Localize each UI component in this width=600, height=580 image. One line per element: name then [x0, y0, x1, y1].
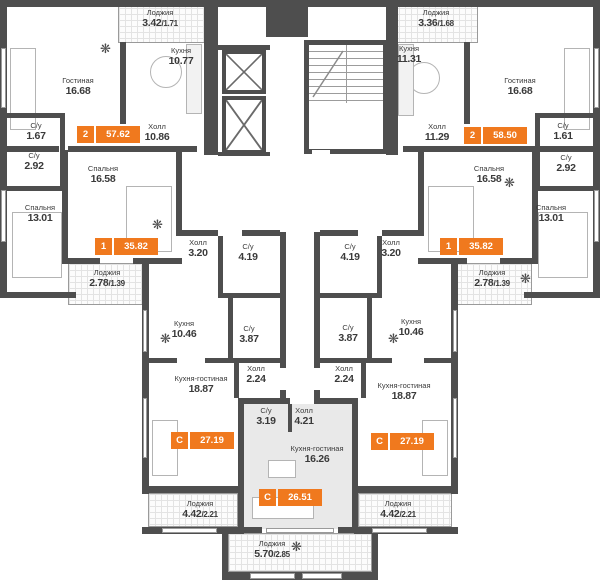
room-label-kitchen-living: Кухня-гостиная16.26	[290, 444, 343, 467]
window	[594, 48, 599, 108]
room-label-bathroom: С/у4.19	[238, 242, 257, 265]
badge-area: 27.19	[390, 433, 434, 450]
wall	[234, 363, 239, 398]
room-label-loggia: Лоджия2.78/1.39	[474, 268, 510, 291]
room-label-kitchen: Кухня10.77	[169, 46, 194, 69]
window	[302, 573, 342, 579]
wall	[541, 146, 593, 152]
room-label-hall: Холл3.20	[381, 238, 400, 261]
room-label-kitchen-living: Кухня-гостиная18.87	[377, 381, 430, 404]
badge-unit-type: 1	[95, 238, 112, 255]
wall	[218, 236, 223, 296]
wall	[228, 296, 233, 358]
wall	[418, 258, 467, 264]
plant-icon: ❋	[520, 272, 531, 285]
wall	[320, 293, 382, 298]
plant-icon: ❋	[160, 332, 171, 345]
wall	[176, 230, 218, 236]
wall	[338, 527, 358, 533]
room-label-kitchen-living: Кухня-гостиная18.87	[174, 374, 227, 397]
wall	[451, 258, 458, 494]
window	[250, 573, 295, 579]
wall	[133, 258, 182, 264]
room-label-bedroom: Спальня16.58	[474, 164, 504, 187]
window	[266, 528, 334, 533]
floor-plan: ❋ ❋ ❋ ❋ ❋ ❋ ❋ Лоджия3.42/1.71 Лоджия3.36…	[0, 0, 600, 580]
plant-icon: ❋	[504, 176, 515, 189]
room-label-loggia: Лоджия3.42/1.71	[142, 8, 178, 31]
elevator-shaft-icon	[222, 50, 266, 94]
wall	[204, 7, 218, 155]
wall	[238, 404, 244, 533]
apartment-badge-studio-center[interactable]: С26.51	[259, 489, 322, 506]
window	[143, 398, 147, 458]
room-label-hall: Холл10.86	[145, 122, 170, 145]
badge-area: 58.50	[483, 127, 527, 144]
badge-unit-type: С	[371, 433, 388, 450]
badge-area: 35.82	[459, 238, 503, 255]
wall	[418, 150, 424, 236]
plant-icon: ❋	[291, 540, 302, 553]
plant-icon: ❋	[388, 332, 399, 345]
room-label-loggia: Лоджия4.42/2.21	[380, 499, 416, 522]
badge-unit-type: С	[259, 489, 276, 506]
room-label-hall: Холл4.21	[294, 406, 313, 429]
wall	[62, 150, 68, 264]
wall	[0, 0, 600, 7]
elevator-shaft-icon	[222, 96, 266, 154]
wall	[382, 230, 424, 236]
badge-area: 26.51	[278, 489, 322, 506]
door-opening	[314, 368, 320, 390]
wall	[358, 486, 458, 493]
room-label-bathroom: С/у3.19	[256, 406, 275, 429]
wall	[205, 358, 283, 363]
wall	[222, 533, 228, 574]
apartment-badge-studio-left[interactable]: С27.19	[171, 432, 234, 449]
wall	[7, 113, 62, 118]
room-label-hall: Холл3.20	[188, 238, 207, 261]
wall	[464, 42, 470, 124]
badge-unit-type: 1	[440, 238, 457, 255]
door-opening	[280, 368, 286, 390]
wall	[142, 486, 242, 493]
room-label-kitchen: Кухня10.46	[172, 319, 197, 342]
wall	[7, 186, 65, 191]
apartment-badge-studio-right[interactable]: С27.19	[371, 433, 434, 450]
window	[453, 398, 457, 458]
badge-area: 35.82	[114, 238, 158, 255]
room-label-bathroom: С/у1.67	[26, 121, 45, 144]
window	[453, 310, 457, 352]
room-label-loggia: Лоджия5.70/2.85	[254, 539, 290, 562]
room-label-bedroom: Спальня13.01	[536, 203, 566, 226]
room-label-bathroom: С/у2.92	[24, 151, 43, 174]
door-opening	[312, 150, 330, 154]
wall	[242, 230, 280, 236]
wall	[500, 258, 538, 264]
room-label-hall: Холл2.24	[334, 364, 353, 387]
wall	[524, 292, 600, 298]
wall	[176, 150, 182, 236]
wall	[288, 404, 292, 432]
apartment-badge-2room-right[interactable]: 258.50	[464, 127, 527, 144]
room-label-kitchen: Кухня11.31	[397, 44, 421, 67]
wall	[222, 572, 378, 580]
badge-unit-type: С	[171, 432, 188, 449]
apartment-badge-1room-right[interactable]: 135.82	[440, 238, 503, 255]
window	[372, 528, 427, 533]
wall	[266, 7, 308, 37]
wall	[238, 398, 290, 404]
badge-unit-type: 2	[464, 127, 481, 144]
badge-unit-type: 2	[77, 126, 94, 143]
wall	[538, 113, 593, 118]
wall	[361, 363, 366, 398]
wall	[142, 258, 149, 494]
window	[594, 190, 599, 242]
room-label-bathroom: С/у2.92	[556, 153, 575, 176]
room-label-bathroom: С/у1.61	[553, 121, 572, 144]
wall	[120, 42, 126, 124]
wall	[238, 527, 262, 533]
wall	[593, 0, 600, 298]
wall	[367, 296, 372, 358]
wall	[424, 358, 452, 363]
apartment-badge-2room-left[interactable]: 257.62	[77, 126, 140, 143]
wall	[62, 258, 100, 264]
room-label-loggia: Лоджия4.42/2.21	[182, 499, 218, 522]
wall	[372, 533, 378, 574]
room-label-bedroom: Спальня16.58	[88, 164, 118, 187]
room-label-loggia: Лоджия2.78/1.39	[89, 268, 125, 291]
staircase	[304, 40, 388, 154]
room-label-bathroom: С/у4.19	[340, 242, 359, 265]
plant-icon: ❋	[100, 42, 111, 55]
room-label-loggia: Лоджия3.36/1.68	[418, 8, 454, 31]
stair-rail-icon	[309, 45, 383, 149]
room-label-living: Гостиная16.68	[504, 76, 535, 99]
wall	[0, 292, 76, 298]
wall	[149, 358, 177, 363]
room-label-bedroom: Спальня13.01	[25, 203, 55, 226]
window	[143, 310, 147, 352]
window	[162, 528, 217, 533]
badge-area: 57.62	[96, 126, 140, 143]
room-label-hall: Холл2.24	[246, 364, 265, 387]
room-label-bathroom: С/у3.87	[338, 323, 357, 346]
plant-icon: ❋	[152, 218, 163, 231]
room-label-kitchen: Кухня10.46	[399, 317, 424, 340]
room-label-bathroom: С/у3.87	[239, 324, 258, 347]
window	[1, 190, 6, 242]
wall	[320, 230, 358, 236]
room-label-hall: Холл11.29	[425, 122, 449, 145]
apartment-badge-1room-left[interactable]: 135.82	[95, 238, 158, 255]
wall	[352, 404, 358, 533]
wall	[317, 358, 392, 363]
window	[1, 48, 6, 108]
wall	[535, 186, 593, 191]
room-label-living: Гостиная16.68	[62, 76, 93, 99]
badge-area: 27.19	[190, 432, 234, 449]
wall	[0, 0, 7, 298]
